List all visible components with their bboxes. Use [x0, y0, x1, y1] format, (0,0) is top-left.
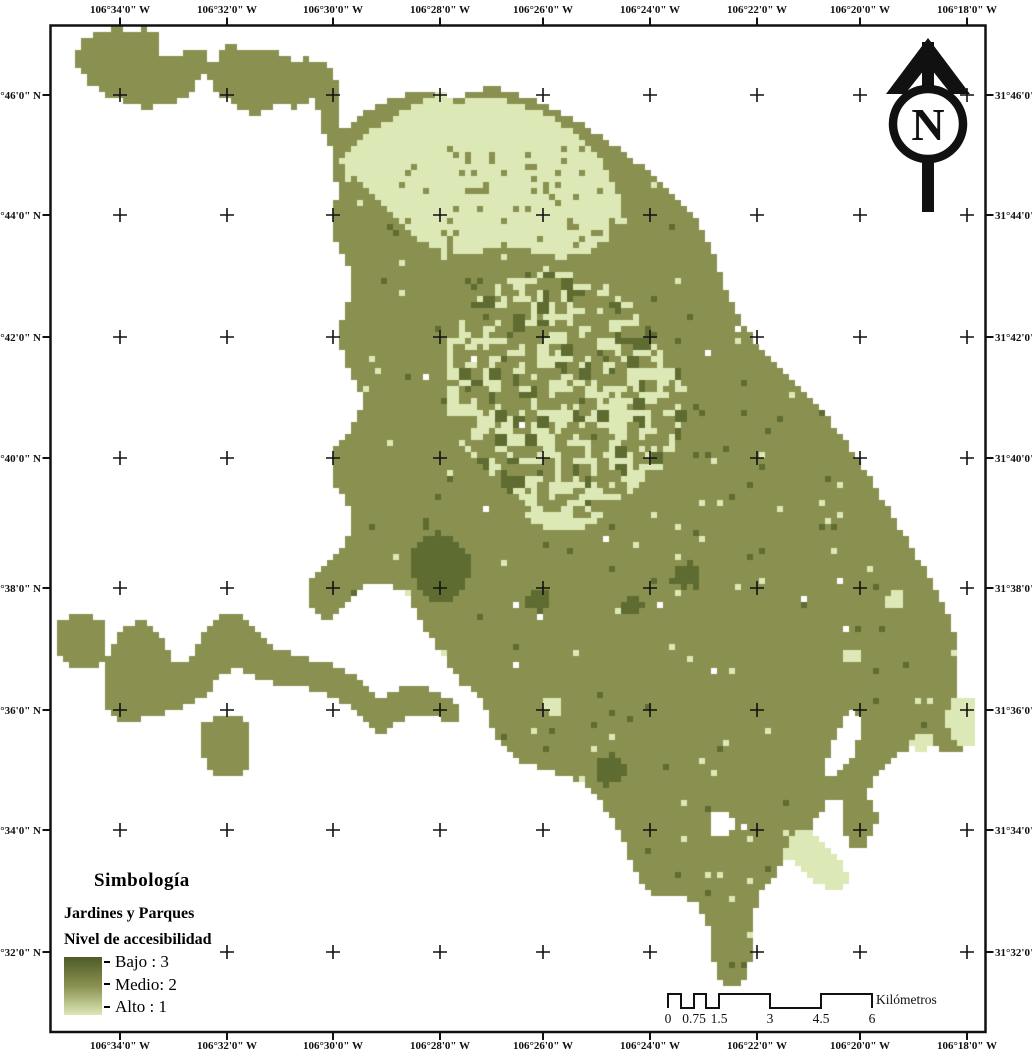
lon-label-bottom: 106°24'0" W	[620, 1040, 680, 1052]
legend-title: Simbología	[94, 870, 304, 892]
lon-label-bottom: 106°22'0" W	[727, 1040, 787, 1052]
lat-label-left: 31°40'0" N	[0, 453, 41, 465]
lon-label-bottom: 106°32'0" W	[197, 1040, 257, 1052]
legend-tick-icon	[104, 961, 110, 963]
legend-field-name: Nivel de accesibilidad	[64, 931, 304, 949]
legend-tick-icon	[104, 983, 110, 985]
legend-tick-icon	[104, 1006, 110, 1008]
legend-entries: Bajo : 3 Medio: 2 Alto : 1	[104, 952, 177, 1016]
legend-entry-label: Bajo : 3	[115, 952, 169, 971]
lat-label-left: 31°42'0" N	[0, 332, 41, 344]
lon-label-bottom: 106°28'0" W	[410, 1040, 470, 1052]
legend-entry-label: Alto : 1	[115, 997, 167, 1016]
legend-gradient-swatch	[64, 957, 102, 1015]
legend-entry-alto: Alto : 1	[104, 997, 177, 1016]
lon-label-bottom: 106°18'0" W	[937, 1040, 997, 1052]
legend: Simbología Jardines y Parques Nivel de a…	[64, 870, 304, 1016]
lon-label-top: 106°18'0" W	[937, 4, 997, 16]
lon-label-top: 106°26'0" W	[513, 4, 573, 16]
lon-label-bottom: 106°34'0" W	[90, 1040, 150, 1052]
lon-label-top: 106°34'0" W	[90, 4, 150, 16]
lat-label-right: 31°34'0" N	[995, 825, 1032, 837]
lat-label-left: 31°34'0" N	[0, 825, 41, 837]
lat-label-right: 31°44'0" N	[995, 210, 1032, 222]
lat-label-right: 31°40'0" N	[995, 453, 1032, 465]
lat-label-right: 31°38'0" N	[995, 583, 1032, 595]
lon-label-top: 106°24'0" W	[620, 4, 680, 16]
lon-label-top: 106°30'0" W	[303, 4, 363, 16]
lat-label-left: 31°32'0" N	[0, 947, 41, 959]
lon-label-top: 106°20'0" W	[830, 4, 890, 16]
lat-label-left: 31°44'0" N	[0, 210, 41, 222]
lat-label-right: 31°36'0" N	[995, 705, 1032, 717]
lat-label-right: 31°42'0" N	[995, 332, 1032, 344]
map-export-page: 106°34'0" W106°34'0" W106°32'0" W106°32'…	[0, 0, 1032, 1058]
lon-label-bottom: 106°20'0" W	[830, 1040, 890, 1052]
lon-label-top: 106°28'0" W	[410, 4, 470, 16]
lat-label-left: 31°38'0" N	[0, 583, 41, 595]
lon-label-bottom: 106°26'0" W	[513, 1040, 573, 1052]
lat-label-left: 31°36'0" N	[0, 705, 41, 717]
lon-label-top: 106°32'0" W	[197, 4, 257, 16]
legend-ramp: Bajo : 3 Medio: 2 Alto : 1	[64, 952, 304, 1016]
legend-entry-medio: Medio: 2	[104, 975, 177, 994]
lon-label-top: 106°22'0" W	[727, 4, 787, 16]
lat-label-right: 31°46'0" N	[995, 90, 1032, 102]
lat-label-left: 31°46'0" N	[0, 90, 41, 102]
legend-entry-bajo: Bajo : 3	[104, 952, 177, 971]
lon-label-bottom: 106°30'0" W	[303, 1040, 363, 1052]
legend-layer-name: Jardines y Parques	[64, 905, 304, 923]
legend-entry-label: Medio: 2	[115, 975, 177, 994]
lat-label-right: 31°32'0" N	[995, 947, 1032, 959]
